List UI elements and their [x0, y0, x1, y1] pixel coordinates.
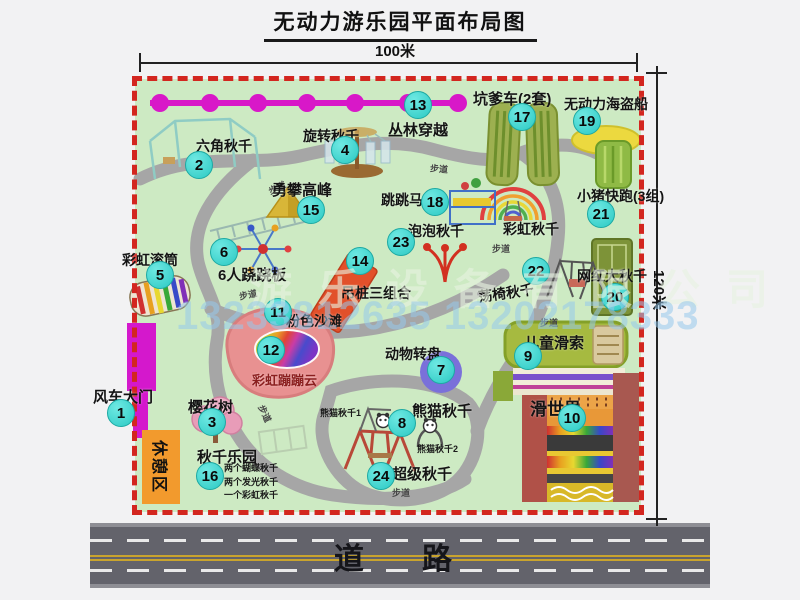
footpath-label-2: 步道 [492, 242, 510, 255]
rest-area: 休憩区 [142, 430, 180, 504]
attraction-badge-5: 5 [146, 261, 174, 289]
road: 道 路 [90, 523, 710, 588]
attraction-badge-7: 7 [427, 356, 455, 384]
panda-swing-1-icon [360, 409, 391, 431]
attraction-badge-10: 10 [558, 404, 586, 432]
piggy-run-icon [596, 141, 631, 188]
attraction-badge-18: 18 [421, 188, 449, 216]
attraction-label-21: 小猪快跑(3组) [577, 186, 664, 206]
height-dimension-tick-bottom [646, 518, 667, 520]
attraction-badge-16: 16 [196, 462, 224, 490]
width-dimension-tick-right [636, 53, 638, 72]
attraction-badge-20: 20 [601, 283, 629, 311]
windmill-gate-icon [127, 323, 156, 391]
height-dimension-tick-top [646, 72, 667, 74]
attraction-sublabel-8-0: 熊猫秋千1 [320, 406, 361, 419]
attraction-label-24: 超级秋千 [392, 463, 452, 484]
attraction-badge-3: 3 [198, 408, 226, 436]
attraction-badge-19: 19 [573, 107, 601, 135]
attraction-label-18: 跳跳马 [381, 190, 423, 210]
attraction-badge-23: 23 [387, 228, 415, 256]
road-label: 道 路 [90, 527, 710, 584]
attraction-notes-16: 两个蝴蝶秋千两个发光秋千一个彩虹秋千 [224, 462, 278, 503]
attraction-badge-11: 11 [264, 298, 292, 326]
attraction-badge-22: 22 [522, 257, 550, 285]
attraction-label-14: 吊桩三组合 [341, 283, 411, 303]
title-wrap: 无动力游乐园平面布局图 [0, 6, 800, 42]
attraction-label-6: 6人跷跷板 [218, 264, 286, 285]
footpath-label-1: 步道 [429, 161, 448, 176]
attraction-label-12: 彩虹蹦蹦云 [252, 370, 317, 389]
page-title: 无动力游乐园平面布局图 [264, 6, 537, 42]
rest-area-label: 休憩区 [149, 440, 173, 494]
attraction-label-13: 丛林穿越 [388, 119, 448, 140]
attraction-badge-14: 14 [346, 247, 374, 275]
swing-paradise-icon [259, 426, 307, 454]
attraction-badge-13: 13 [404, 91, 432, 119]
attraction-badge-21: 21 [587, 200, 615, 228]
attraction-label-23: 泡泡秋千 [408, 221, 464, 241]
attraction-badge-8: 8 [388, 409, 416, 437]
rainbow-swing-icon [482, 189, 544, 221]
footpath-label-6: 步道 [540, 316, 558, 329]
footpath-label-5: 步道 [392, 486, 410, 499]
extra-label-0: 彩虹秋千 [503, 219, 559, 239]
attraction-badge-4: 4 [331, 136, 359, 164]
attraction-label-8: 熊猫秋千 [412, 400, 472, 421]
attraction-badge-6: 6 [210, 238, 238, 266]
attraction-badge-1: 1 [107, 399, 135, 427]
attraction-badge-17: 17 [508, 103, 536, 131]
attraction-badge-2: 2 [185, 151, 213, 179]
attraction-badge-24: 24 [367, 462, 395, 490]
width-dimension-line [140, 62, 637, 64]
bubble-swing-icon [425, 245, 466, 283]
park-layout-map: 无动力游乐园平面布局图 100米 120米 [0, 0, 800, 600]
attraction-badge-9: 9 [514, 342, 542, 370]
attraction-badge-15: 15 [297, 196, 325, 224]
attraction-badge-12: 12 [257, 336, 285, 364]
width-dimension-label: 100米 [358, 40, 432, 60]
height-dimension-label: 120米 [650, 260, 670, 320]
width-dimension-tick-left [139, 53, 141, 72]
attraction-label-11: 粉色沙滩 [286, 311, 342, 331]
attraction-label-15: 勇攀高峰 [272, 179, 332, 200]
attraction-sublabel-8-1: 熊猫秋千2 [417, 442, 458, 455]
slide-world-icon [493, 368, 639, 502]
